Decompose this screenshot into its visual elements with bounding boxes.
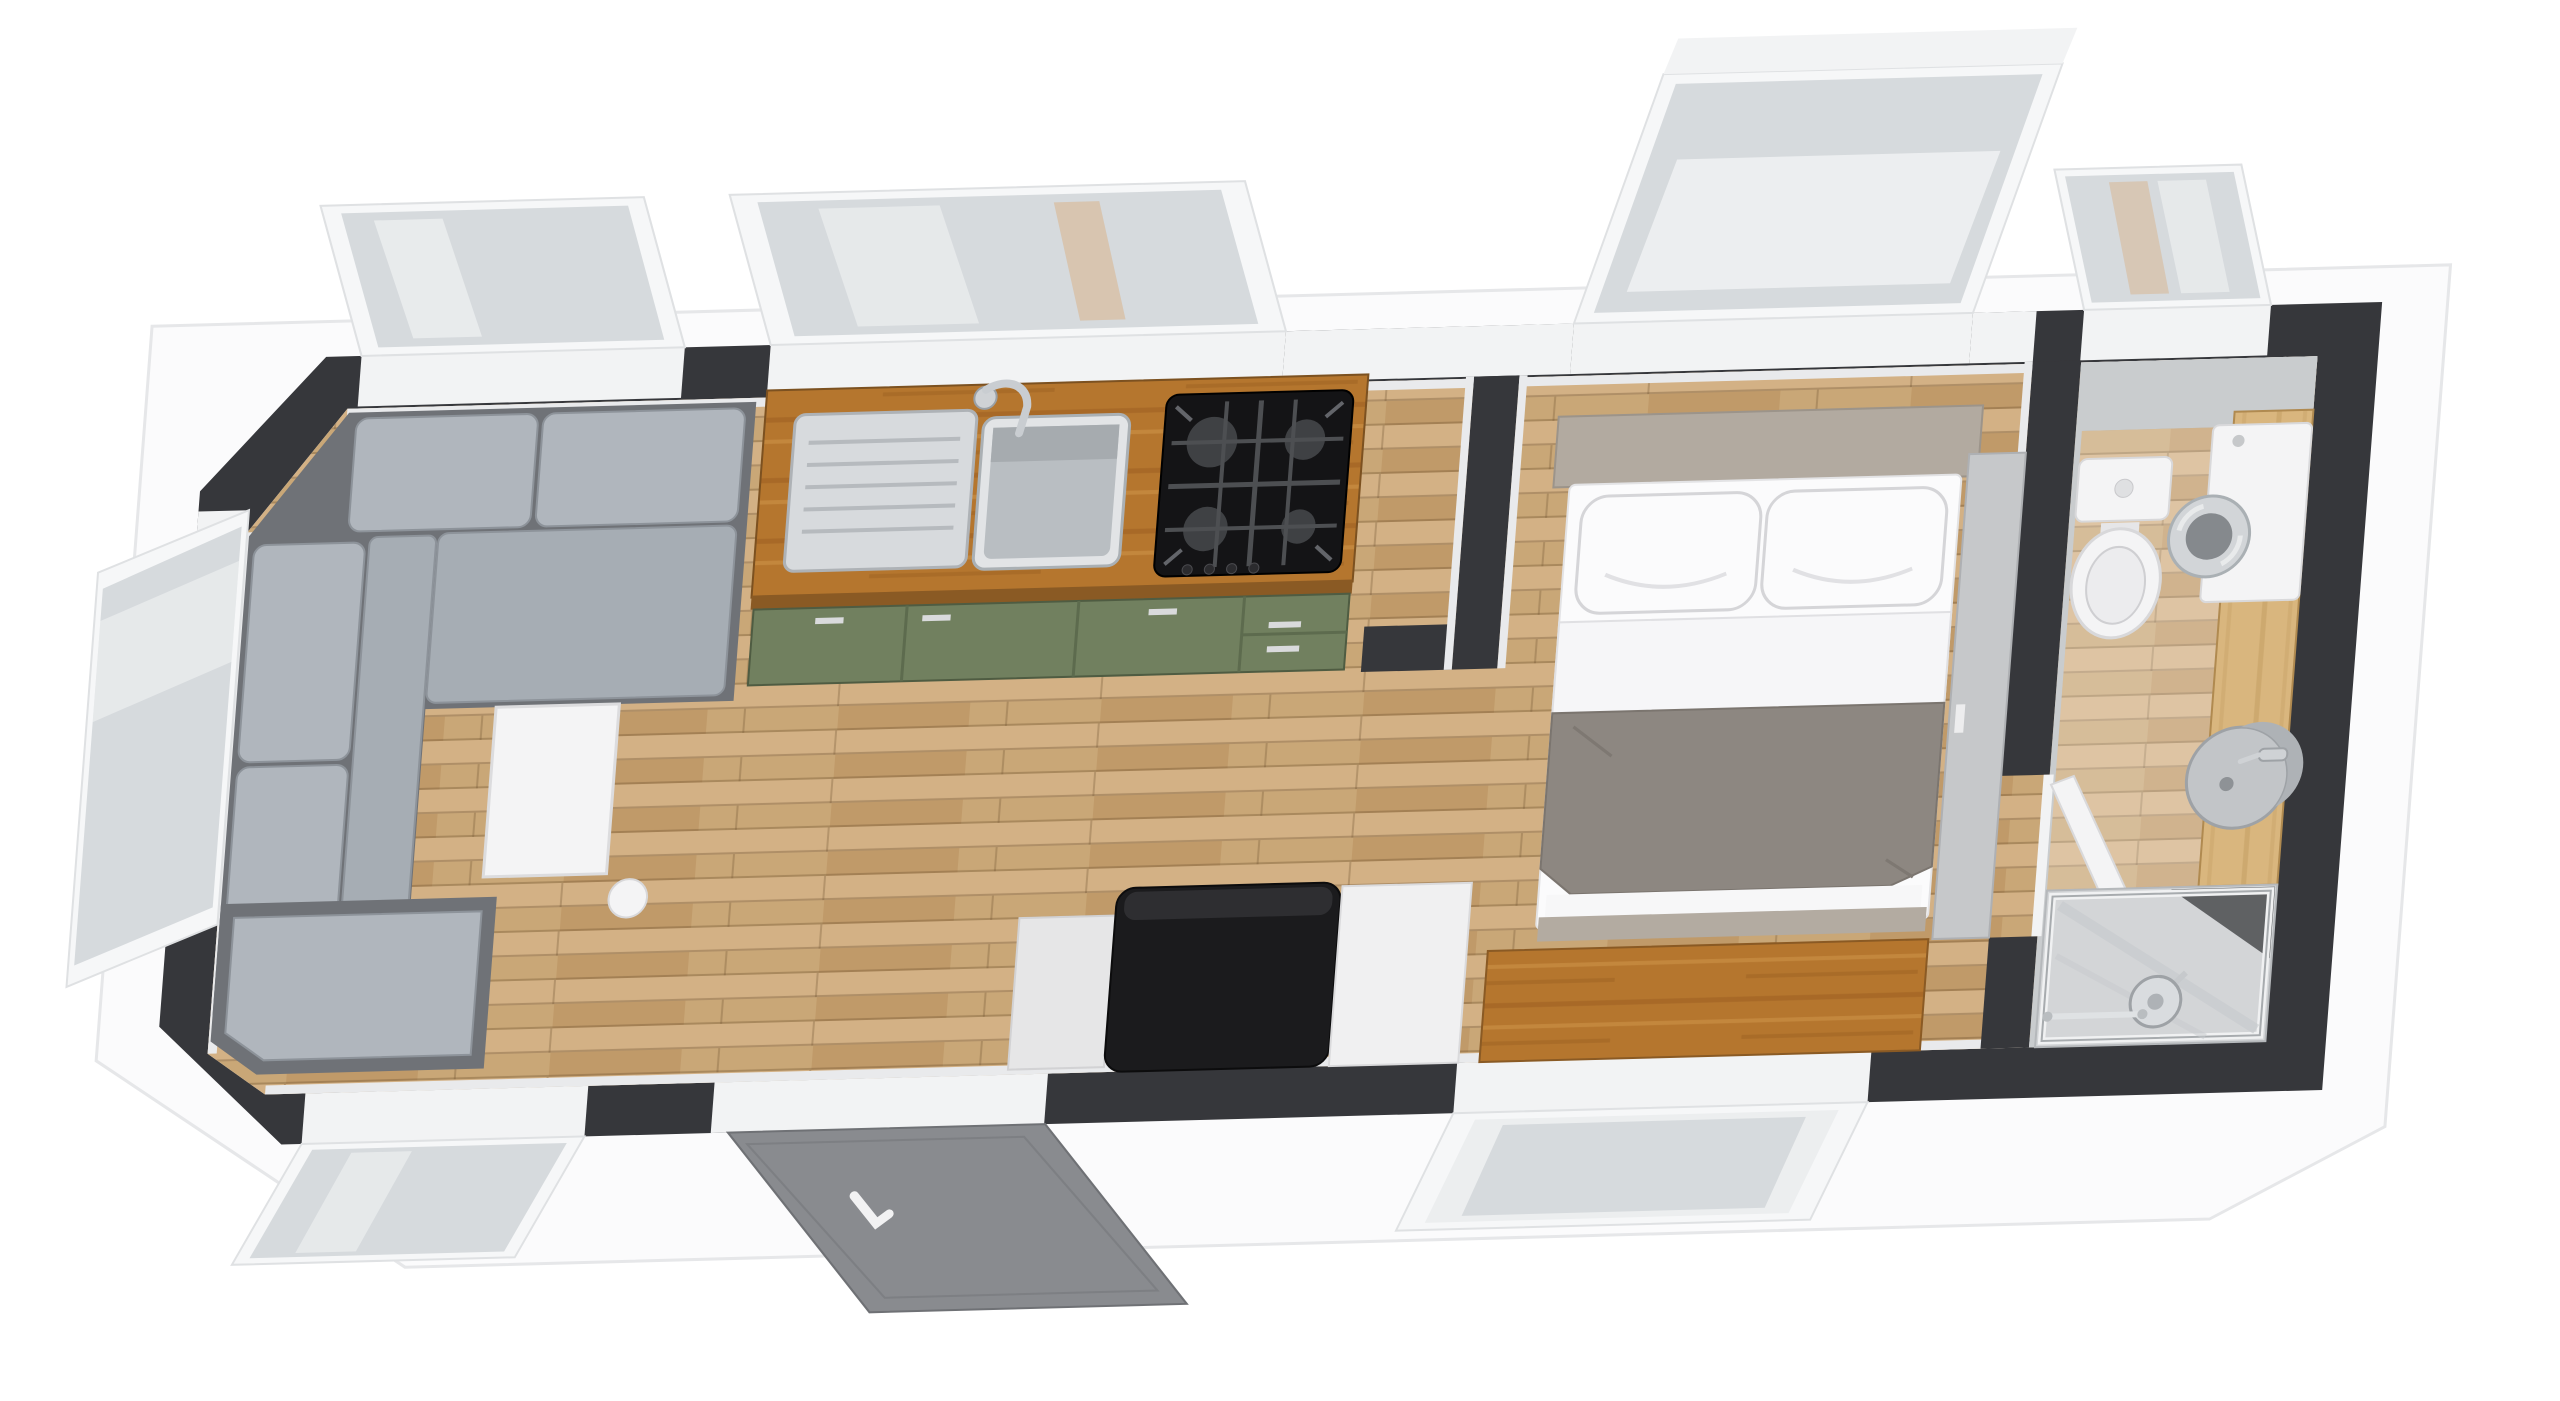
entry-door-threshold [711, 1074, 1048, 1133]
hob-knob [1248, 563, 1259, 573]
partition-wall [1980, 936, 2037, 1048]
hob-knob [1204, 564, 1215, 574]
low-window-sill [302, 1086, 589, 1144]
green-cabinet-fronts [748, 594, 1350, 686]
scene [40, 17, 2469, 1334]
sink-drainboard [784, 410, 978, 571]
cabinet-handle [815, 617, 844, 624]
gas-hob [1153, 390, 1354, 577]
pillow [1574, 492, 1763, 614]
side-table [483, 704, 619, 877]
top-wall-white-segment [1282, 324, 1574, 382]
kitchen [745, 374, 1369, 686]
chaise-cushion [223, 911, 481, 1061]
sofa-window [309, 196, 696, 358]
walk-in-shower [2035, 884, 2277, 1047]
sofa-back-cushion [238, 542, 366, 762]
white-side-cabinet [1329, 883, 1472, 1066]
basin-shadow [991, 424, 1120, 462]
sofa-back-cushion [348, 414, 538, 532]
sofa-window-sill [358, 347, 685, 406]
wood-console-desk [1479, 939, 1928, 1062]
sink-faucet [2258, 748, 2287, 761]
sofa-back-cushion [535, 408, 746, 527]
hob-knob [1226, 563, 1237, 573]
black-unit-top [1123, 887, 1333, 921]
hob-knob [1182, 565, 1193, 575]
bathroom-window-sill [2080, 305, 2271, 361]
gray-blanket [1538, 703, 1944, 895]
partition-wall-stub [1361, 624, 1455, 672]
cabinet-handle [922, 614, 951, 621]
kitchen-window [718, 180, 1297, 347]
floor-plan-image [0, 0, 2560, 1401]
cabinet-handle [1148, 608, 1177, 615]
pillow [1760, 487, 1949, 609]
duvet-fold [1552, 612, 1951, 717]
window-glass-inner [1462, 1117, 1806, 1216]
floor-plan-render [0, 0, 2560, 1401]
drawer-handle [1268, 621, 1301, 628]
towel-bar [2047, 1014, 2142, 1017]
white-panel [1008, 916, 1116, 1070]
drawer-handle [1267, 645, 1300, 652]
low-window-bedroom [1396, 1102, 1868, 1231]
sofa-seat-cushion [426, 525, 737, 703]
bathroom-window [2044, 163, 2282, 311]
top-wall-white-segment [1969, 311, 2036, 363]
glass-reflection-duvet [1627, 151, 2001, 292]
